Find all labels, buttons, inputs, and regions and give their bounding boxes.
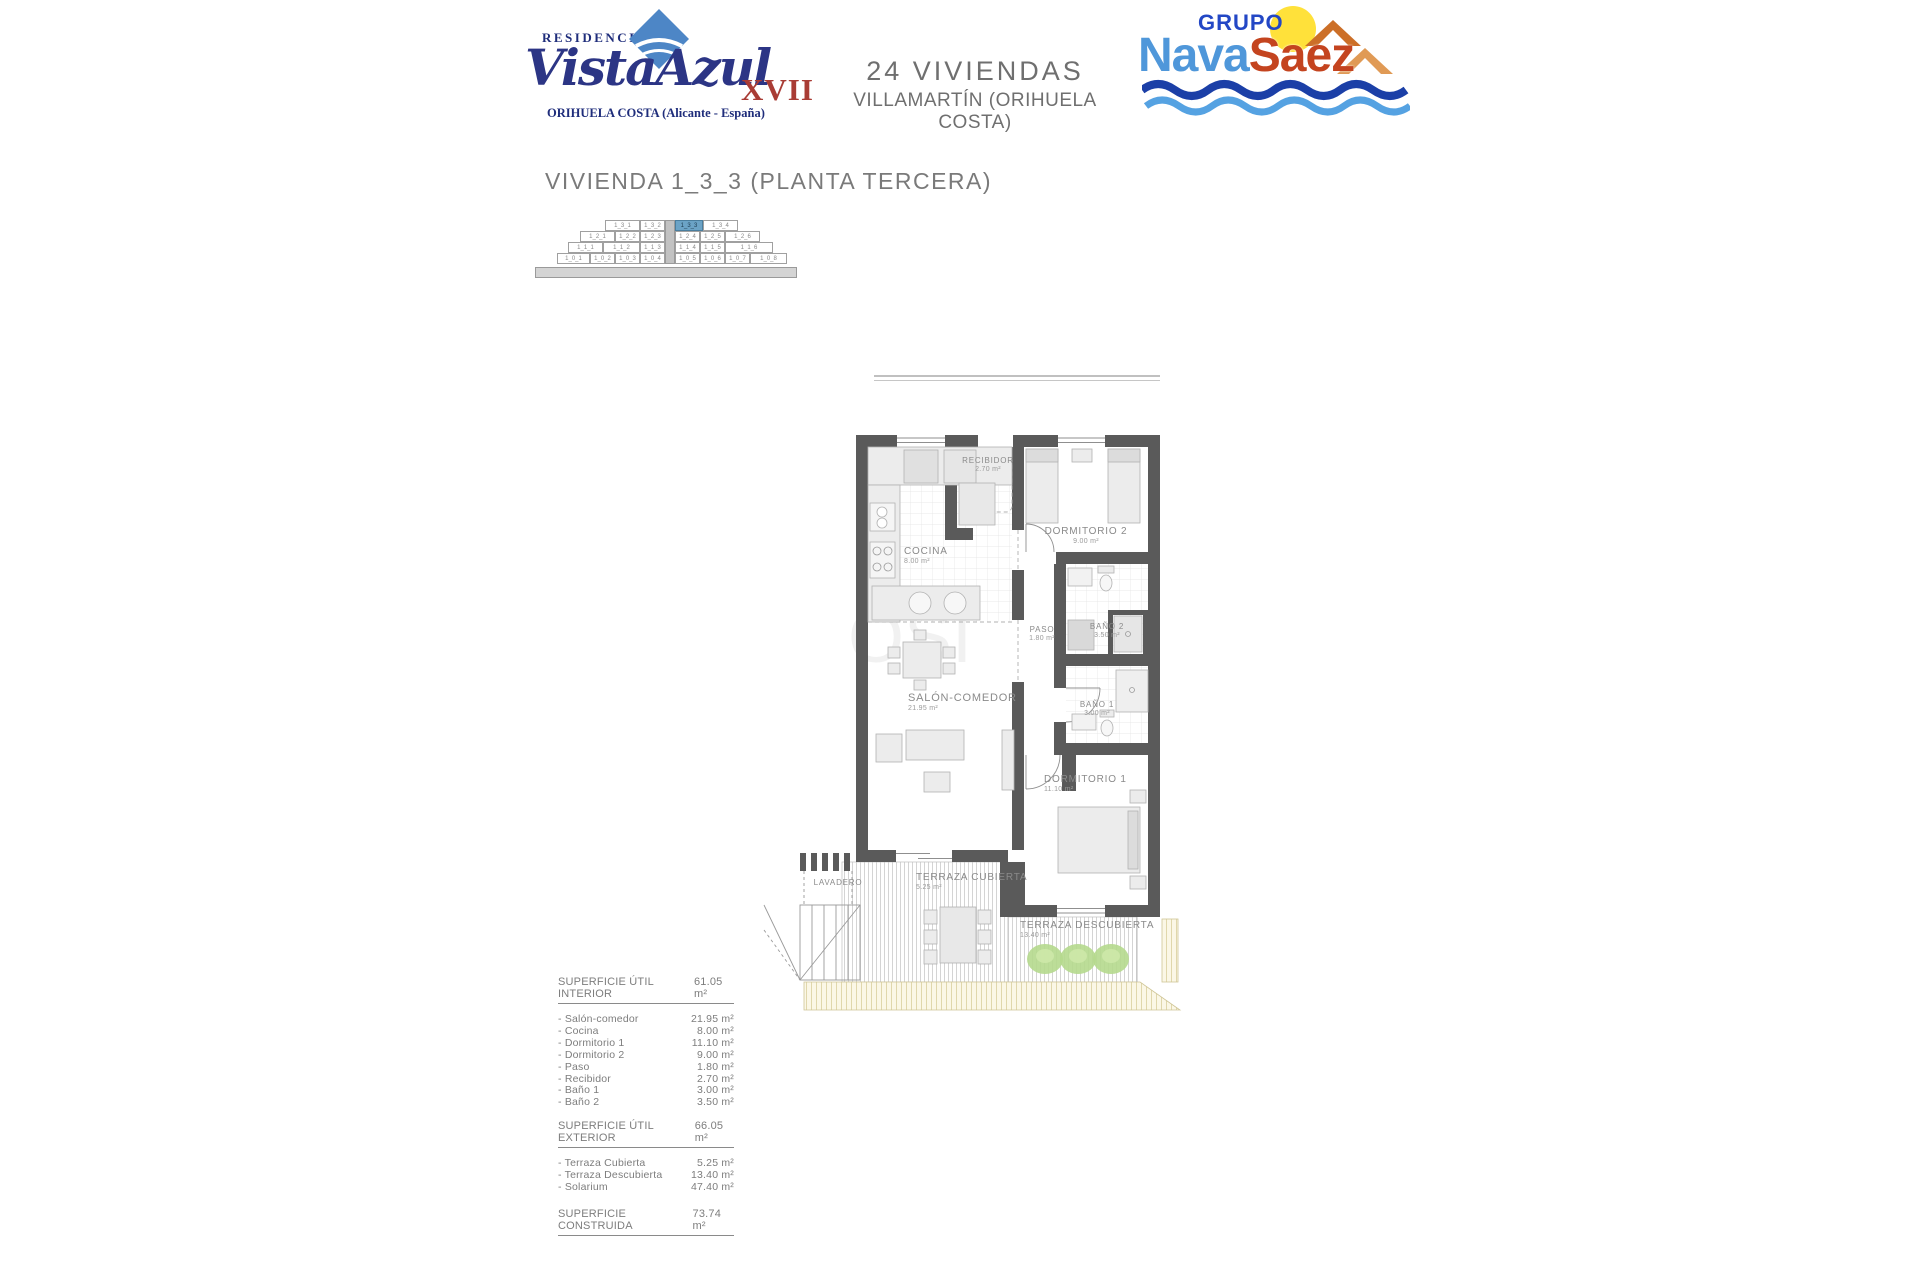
surface-table-interior-header: SUPERFICIE ÚTIL INTERIOR 61.05 m² — [558, 976, 734, 1004]
room-label-terraza-descubierta: TERRAZA DESCUBIERTA 13.40 m² — [1020, 920, 1154, 940]
surface-table-exterior: SUPERFICIE ÚTIL EXTERIOR 66.05 m² - Terr… — [558, 1120, 734, 1194]
building-key-unit: 1_3_1 — [605, 220, 640, 231]
building-key-unit: 1_1_5 — [700, 242, 725, 253]
surface-table-construida-header: SUPERFICIE CONSTRUIDA 73.74 m² — [558, 1208, 734, 1236]
building-key-unit: 1_0_4 — [640, 253, 665, 264]
room-label-bano1: BAÑO 1 3.00 m² — [1080, 700, 1114, 718]
room-label-lavadero: LAVADERO — [814, 878, 863, 888]
building-key-ground — [535, 267, 797, 278]
surface-table-interior-total: 61.05 m² — [694, 976, 734, 1000]
building-key-unit: 1_0_3 — [615, 253, 640, 264]
surface-table-interior: SUPERFICIE ÚTIL INTERIOR 61.05 m² - Saló… — [558, 976, 734, 1109]
surface-table-row: - Solarium47.40 m² — [558, 1182, 734, 1194]
project-title-block: 24 VIVIENDAS VILLAMARTÍN (ORIHUELA COSTA… — [830, 56, 1120, 134]
room-label-cocina: COCINA 8.00 m² — [904, 546, 948, 566]
floorplan: OSI — [756, 370, 1186, 1115]
surface-table-interior-title: SUPERFICIE ÚTIL INTERIOR — [558, 976, 694, 1000]
vistaazul-location: ORIHUELA COSTA (Alicante - España) — [547, 106, 765, 121]
surface-table-row: - Baño 23.50 m² — [558, 1097, 734, 1109]
building-key-unit: 1_1_1 — [568, 242, 603, 253]
navasaez-name: NavaSaez — [1138, 28, 1354, 83]
surface-table-row: - Dormitorio 29.00 m² — [558, 1050, 734, 1062]
navasaez-saez: Saez — [1249, 29, 1354, 82]
building-key-unit: 1_0_5 — [675, 253, 700, 264]
building-key-unit: 1_2_1 — [580, 231, 615, 242]
page-title: VIVIENDA 1_3_3 (PLANTA TERCERA) — [545, 168, 992, 195]
building-key-unit: 1_1_4 — [675, 242, 700, 253]
room-label-terraza-cubierta: TERRAZA CUBIERTA 5.25 m² — [916, 872, 1027, 892]
surface-table-row: - Paso1.80 m² — [558, 1062, 734, 1074]
building-key-unit: 1_2_6 — [725, 231, 760, 242]
surface-table-construida-total: 73.74 m² — [693, 1208, 734, 1232]
building-key-diagram: 1_3_11_3_21_3_31_3_41_2_11_2_21_2_31_2_4… — [533, 220, 805, 284]
building-key-unit: 1_2_2 — [615, 231, 640, 242]
building-key-unit: 1_2_3 — [640, 231, 665, 242]
surface-table-row: - Dormitorio 111.10 m² — [558, 1038, 734, 1050]
section-line — [874, 376, 1160, 381]
building-key-unit: 1_2_4 — [675, 231, 700, 242]
building-key-shaft — [665, 220, 675, 264]
vistaazul-xvii: XVII — [741, 72, 814, 108]
room-label-bano2: BAÑO 2 3.50 m² — [1090, 622, 1124, 640]
project-title-line2: VILLAMARTÍN (ORIHUELA COSTA) — [830, 90, 1120, 134]
building-key-unit: 1_2_5 — [700, 231, 725, 242]
surface-table-exterior-title: SUPERFICIE ÚTIL EXTERIOR — [558, 1120, 695, 1144]
room-label-recibidor: RECIBIDOR 2.70 m² — [962, 456, 1014, 474]
building-key-unit: 1_1_2 — [603, 242, 640, 253]
building-key-unit: 1_0_2 — [590, 253, 615, 264]
vistaazul-name: VistaAzul — [525, 38, 770, 97]
room-label-dormitorio1: DORMITORIO 1 11.10 m² — [1044, 774, 1127, 794]
plants — [1027, 944, 1129, 974]
project-title-line1: 24 VIVIENDAS — [830, 56, 1120, 87]
room-label-salon: SALÓN-COMEDOR 21.95 m² — [908, 692, 1017, 714]
surface-table-construida: SUPERFICIE CONSTRUIDA 73.74 m² — [558, 1208, 734, 1246]
building-key-unit: 1_1_3 — [640, 242, 665, 253]
surface-table-exterior-header: SUPERFICIE ÚTIL EXTERIOR 66.05 m² — [558, 1120, 734, 1148]
building-key-unit: 1_3_4 — [703, 220, 738, 231]
building-key-unit: 1_3_3 — [675, 220, 703, 231]
surface-table-construida-title: SUPERFICIE CONSTRUIDA — [558, 1208, 693, 1232]
building-key-unit: 1_1_6 — [725, 242, 773, 253]
room-label-paso: PASO 1.80 m² — [1029, 625, 1055, 643]
vistaazul-logo: RESIDENCIAL VistaAzul XVII ORIHUELA COST… — [525, 8, 825, 130]
room-label-dormitorio2: DORMITORIO 2 9.00 m² — [1045, 526, 1128, 546]
building-key-unit: 1_0_7 — [725, 253, 750, 264]
floorplan-drawing: OSI — [756, 370, 1186, 1115]
building-key-unit: 1_0_8 — [750, 253, 787, 264]
navasaez-logo: GRUPO NavaSaez — [1138, 4, 1428, 122]
building-key-unit: 1_0_1 — [557, 253, 590, 264]
building-key-unit: 1_3_2 — [640, 220, 665, 231]
surface-table-exterior-total: 66.05 m² — [695, 1120, 734, 1144]
brochure-page: RESIDENCIAL VistaAzul XVII ORIHUELA COST… — [0, 0, 1920, 1280]
waves-icon — [1142, 76, 1410, 120]
navasaez-nava: Nava — [1138, 29, 1249, 82]
building-key-unit: 1_0_6 — [700, 253, 725, 264]
